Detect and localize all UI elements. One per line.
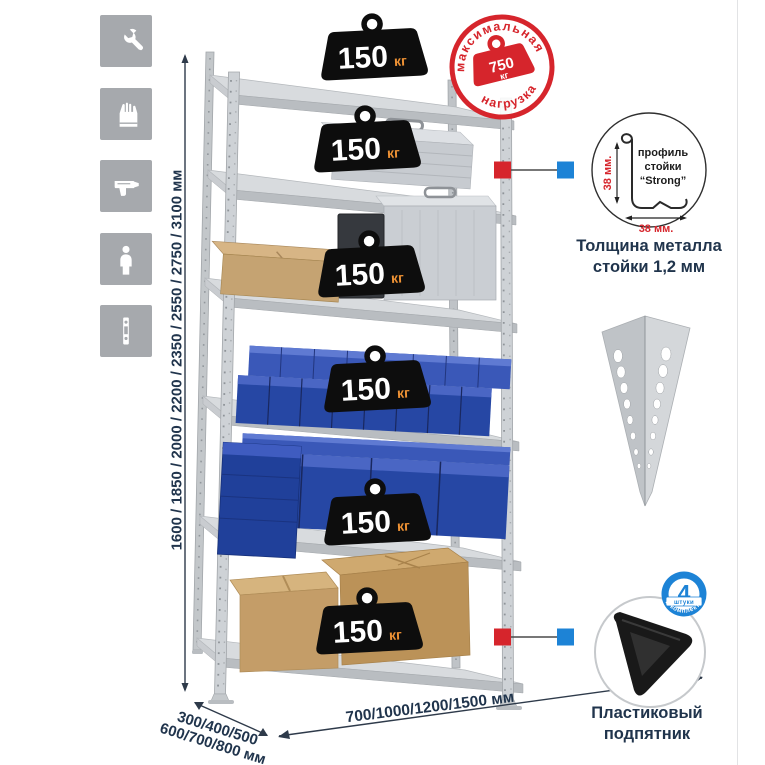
post-foot-plate [208, 700, 234, 704]
perforated-profile-icon [100, 305, 152, 357]
profile-dim-horizontal: 38 мм. [639, 223, 674, 235]
weight-unit: кг [397, 384, 411, 401]
profile-dim-vertical: 38 мм. [602, 156, 614, 191]
weight-value: 150 [337, 40, 389, 76]
weight-unit: кг [391, 269, 405, 286]
wrench-icon [100, 15, 152, 67]
large-bin-left [217, 442, 301, 558]
weight-value: 150 [340, 505, 392, 541]
drill-icon [100, 160, 152, 212]
quantity-badge: 4 штуки в комплекте [662, 572, 707, 617]
profile-caption: Толщина металла стойки 1,2 мм [576, 236, 722, 277]
post-foot-plate [192, 650, 203, 654]
callout-profile [494, 162, 574, 179]
weight-unit: кг [394, 52, 408, 69]
weight-unit: кг [387, 144, 401, 161]
callout-red-square [494, 162, 511, 179]
profile-caption-line1: Толщина металла [576, 236, 722, 257]
profile-label: профиль [638, 147, 688, 159]
feature-icons [100, 15, 152, 357]
weight-unit: кг [397, 517, 411, 534]
profile-detail-circle: 38 мм. 38 мм. профиль стойки “Strong” [592, 113, 706, 235]
weight-value: 150 [334, 257, 386, 293]
weight-value: 150 [330, 132, 382, 168]
profile-label: “Strong” [640, 175, 686, 187]
weight-value: 150 [332, 614, 384, 650]
post-foot [211, 694, 229, 701]
callout-blue-square [557, 629, 574, 646]
infographic-canvas: 150 кг 150 кг 150 кг 150 кг 150 кг [0, 0, 765, 765]
shelf-weight-1: 150 кг [318, 13, 428, 81]
foot-caption: Пластиковый подпятник [591, 703, 702, 744]
weight-unit: кг [389, 626, 403, 643]
callout-blue-square [557, 162, 574, 179]
gloves-icon [100, 88, 152, 140]
callout-red-square [494, 629, 511, 646]
person-icon [100, 233, 152, 285]
angle-post-image [602, 316, 690, 506]
profile-caption-line2: стойки 1,2 мм [576, 257, 722, 278]
foot-caption-line1: Пластиковый [591, 703, 702, 724]
badge-ribbon-text: штуки [674, 600, 694, 606]
height-dimension-label: 1600 / 1850 / 2000 / 2200 / 2350 / 2550 … [169, 170, 186, 551]
foot-caption-line2: подпятник [591, 724, 702, 745]
weight-value: 150 [340, 372, 392, 408]
profile-label: стойки [644, 161, 681, 173]
callout-foot [494, 629, 574, 646]
